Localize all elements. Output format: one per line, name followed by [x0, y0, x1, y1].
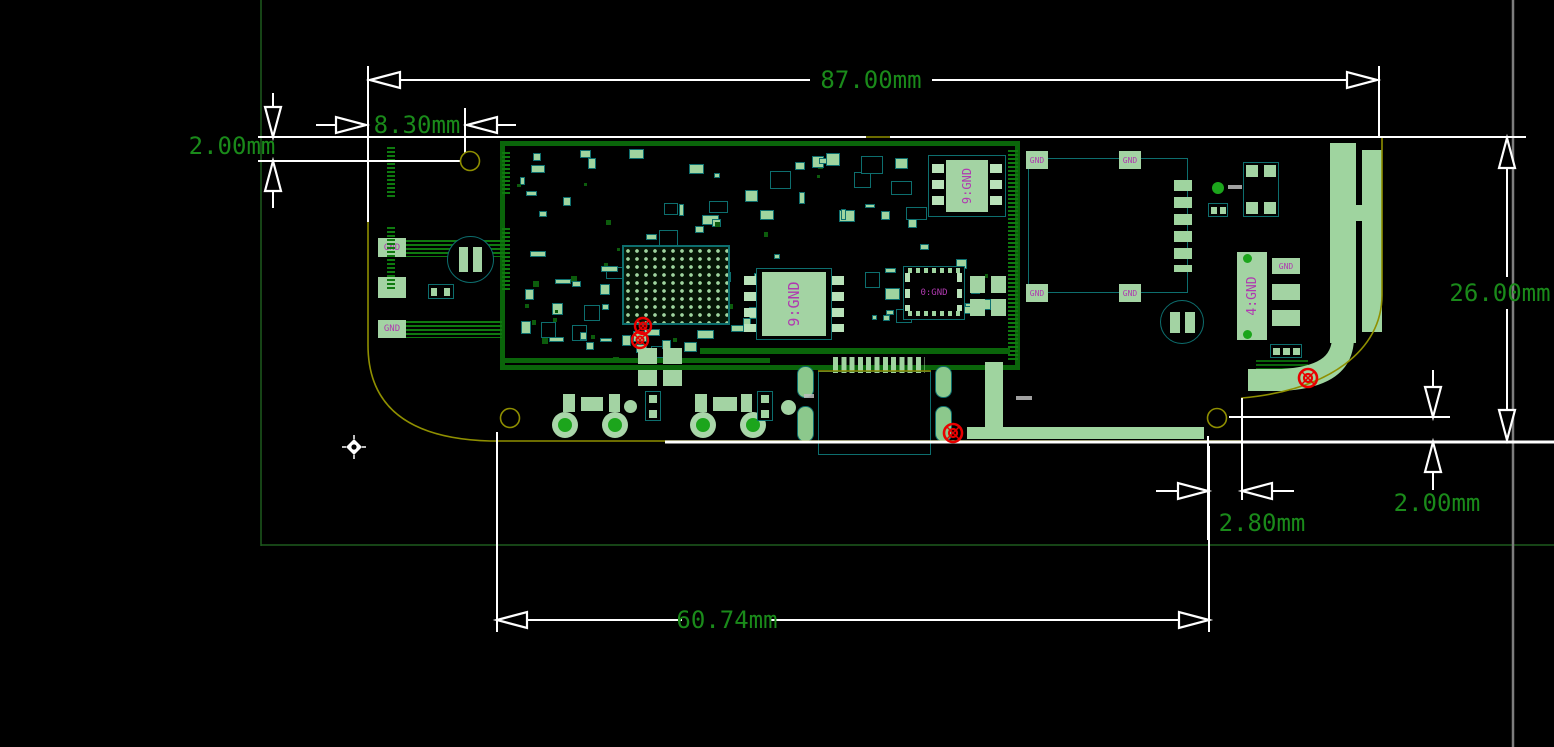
dim-hole-offset-y[interactable]: 2.00mm: [171, 133, 293, 159]
dim-board-width[interactable]: 87.00mm: [791, 67, 951, 93]
mounting-hole[interactable]: [461, 152, 480, 171]
dim-right-offset-x[interactable]: 2.80mm: [1201, 510, 1323, 536]
pcb-layout-viewport[interactable]: GND GND 9:GND 9:GND: [0, 0, 1554, 747]
antenna-feed-trace[interactable]: [1248, 337, 1343, 380]
mounting-hole[interactable]: [501, 409, 520, 428]
board-outline[interactable]: [368, 137, 1382, 441]
mounting-hole[interactable]: [1208, 409, 1227, 428]
dim-board-height[interactable]: 26.00mm: [1424, 280, 1554, 306]
dim-hole-span[interactable]: 60.74mm: [647, 607, 807, 633]
dim-right-offset-y[interactable]: 2.00mm: [1376, 490, 1498, 516]
mounting-holes[interactable]: [461, 152, 1227, 428]
fiducial-mark[interactable]: [944, 424, 962, 442]
drawing-overlay: [0, 0, 1554, 747]
dimension-lines[interactable]: [258, 66, 1554, 632]
origin-marker: [342, 435, 366, 459]
dim-hole-offset-x[interactable]: 8.30mm: [355, 112, 479, 138]
